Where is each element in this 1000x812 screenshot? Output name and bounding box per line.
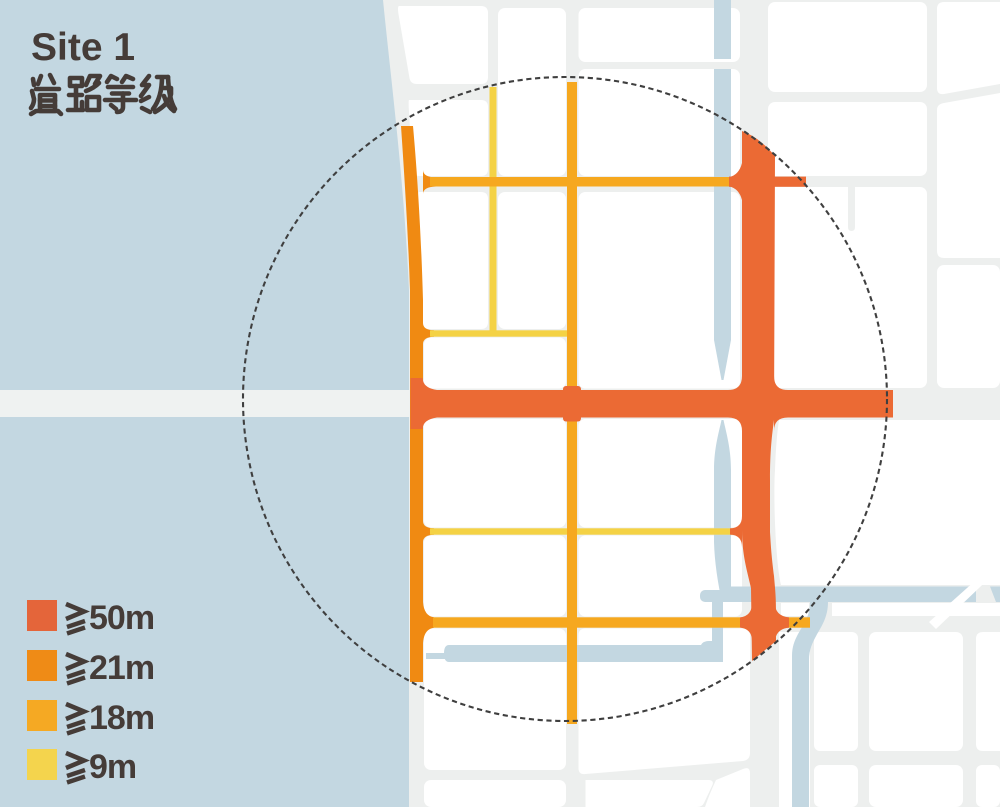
svg-text:50m: 50m [89,599,154,637]
svg-text:18m: 18m [89,699,154,737]
svg-text:Site 1: Site 1 [31,26,135,69]
svg-text:9m: 9m [89,748,136,786]
svg-text:21m: 21m [89,649,154,687]
